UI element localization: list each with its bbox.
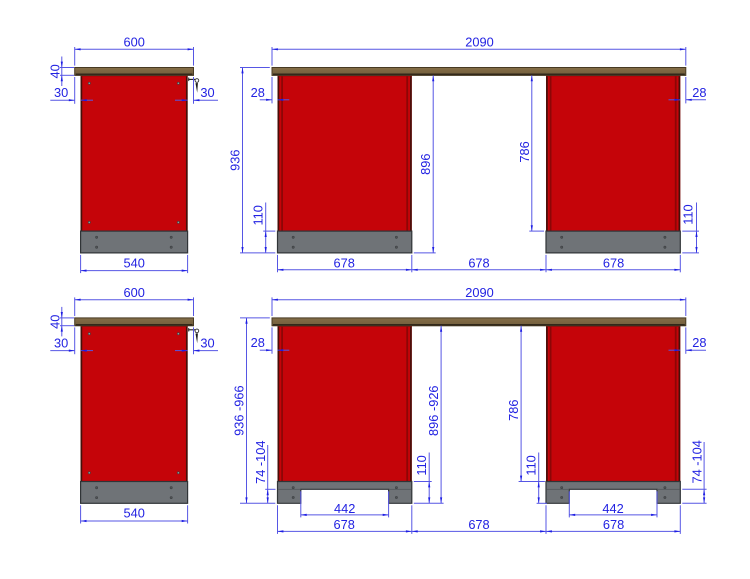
svg-text:28: 28 <box>692 85 706 100</box>
svg-text:540: 540 <box>124 255 145 270</box>
svg-text:786: 786 <box>506 400 521 421</box>
svg-text:30: 30 <box>54 336 68 351</box>
svg-text:896 -926: 896 -926 <box>426 385 441 436</box>
svg-text:786: 786 <box>517 141 532 162</box>
svg-text:600: 600 <box>124 35 145 50</box>
svg-text:30: 30 <box>54 85 68 100</box>
svg-text:110: 110 <box>681 204 696 224</box>
svg-text:442: 442 <box>602 501 623 516</box>
svg-text:678: 678 <box>603 517 624 532</box>
svg-text:30: 30 <box>200 336 214 351</box>
svg-text:678: 678 <box>468 517 489 532</box>
svg-text:600: 600 <box>124 285 145 300</box>
svg-text:30: 30 <box>200 85 214 100</box>
svg-text:936 -966: 936 -966 <box>232 385 247 436</box>
svg-text:28: 28 <box>251 335 265 350</box>
svg-text:28: 28 <box>251 85 265 100</box>
svg-text:74 -104: 74 -104 <box>253 440 268 483</box>
svg-text:442: 442 <box>334 501 355 516</box>
svg-text:110: 110 <box>250 205 265 225</box>
svg-text:110: 110 <box>414 455 429 475</box>
svg-text:110: 110 <box>524 455 539 475</box>
svg-text:678: 678 <box>468 255 489 270</box>
svg-text:896: 896 <box>418 154 433 175</box>
svg-text:678: 678 <box>334 517 355 532</box>
svg-text:936: 936 <box>228 150 243 171</box>
svg-text:678: 678 <box>334 255 355 270</box>
svg-text:28: 28 <box>692 335 706 350</box>
svg-text:2090: 2090 <box>465 285 493 300</box>
svg-text:2090: 2090 <box>465 35 493 50</box>
svg-text:74 -104: 74 -104 <box>689 440 704 483</box>
svg-text:40: 40 <box>48 315 63 329</box>
svg-text:678: 678 <box>603 255 624 270</box>
svg-text:40: 40 <box>48 64 63 78</box>
svg-text:540: 540 <box>124 506 145 521</box>
